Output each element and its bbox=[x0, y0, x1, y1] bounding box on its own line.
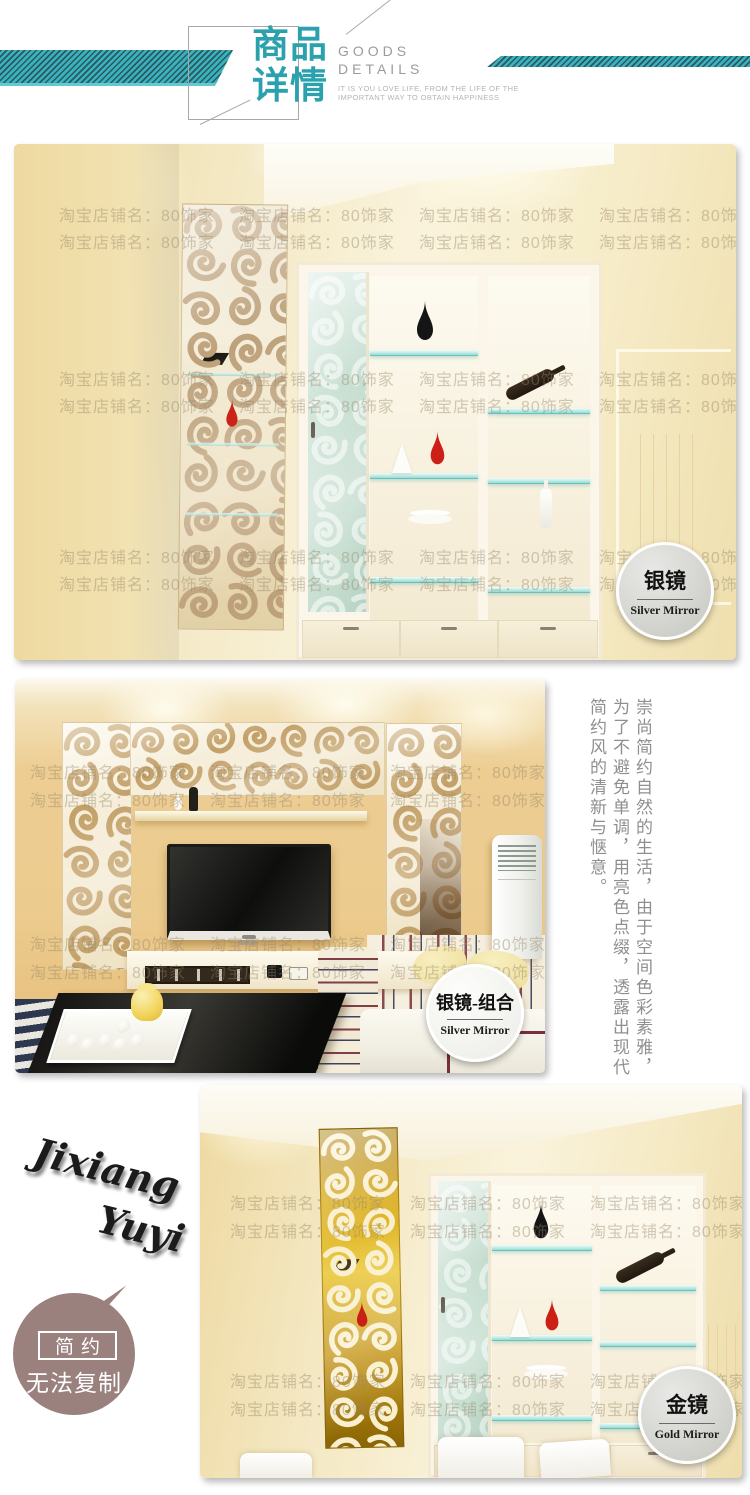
red-teardrop-vase bbox=[429, 426, 446, 472]
black-teardrop-vase bbox=[532, 1199, 550, 1245]
white-cone-vase bbox=[392, 443, 412, 473]
glass-shelf bbox=[600, 1341, 696, 1347]
wall-outlet bbox=[289, 967, 308, 980]
white-chair bbox=[539, 1439, 611, 1478]
product-photo-gold-mirror: 淘宝店铺名：80饰家淘宝店铺名：80饰家淘宝店铺名：80饰家淘宝店铺名：80饰家… bbox=[200, 1085, 742, 1478]
white-vase bbox=[540, 488, 552, 528]
white-mini-vase bbox=[173, 789, 183, 813]
wall-shelf bbox=[135, 811, 367, 821]
glass-shelf bbox=[488, 478, 590, 484]
white-cone-vase bbox=[510, 1307, 530, 1337]
silver-swirl-mirror-panel bbox=[178, 203, 288, 630]
tv-screen bbox=[167, 844, 331, 940]
white-chair bbox=[240, 1453, 312, 1478]
white-dishes bbox=[408, 514, 452, 524]
room-left-wall bbox=[14, 144, 179, 660]
badge-divider bbox=[659, 1423, 715, 1424]
glass-shelf bbox=[370, 473, 478, 479]
badge-title: 银镜 bbox=[644, 565, 686, 595]
tagline-line2: IMPORTANT WAY TO OBTAIN HAPPINESS bbox=[338, 93, 528, 102]
room-ceiling bbox=[200, 1085, 742, 1171]
badge-subtitle: Silver Mirror bbox=[440, 1023, 509, 1038]
swirl-pattern bbox=[320, 1128, 404, 1448]
yellow-jar bbox=[131, 987, 163, 1021]
badge-divider bbox=[447, 1019, 503, 1020]
glass-shelf bbox=[492, 1335, 592, 1341]
badge-title: 银镜-组合 bbox=[436, 989, 514, 1015]
badge-subtitle: Gold Mirror bbox=[655, 1427, 720, 1442]
decor-line-top bbox=[346, 0, 392, 35]
cabinet-drawer bbox=[400, 620, 498, 658]
glass-shelf bbox=[488, 587, 590, 593]
air-conditioner bbox=[492, 835, 542, 959]
cabinet-bay-right bbox=[488, 276, 590, 622]
door-handle bbox=[441, 1297, 445, 1313]
stamp-caption: 无法复制 bbox=[13, 1364, 135, 1398]
dark-mini-vase bbox=[189, 787, 198, 811]
swirl-panel-right-column bbox=[386, 723, 462, 937]
subtitle-line1: GOODS bbox=[338, 42, 458, 60]
door-swirl-pattern bbox=[308, 272, 366, 612]
red-teardrop-vase bbox=[544, 1295, 560, 1337]
minimalism-stamp: 简约 无法复制 bbox=[13, 1293, 135, 1415]
badge-subtitle: Silver Mirror bbox=[630, 603, 699, 618]
page-title: 商品 详情 bbox=[252, 24, 342, 106]
glass-shelf bbox=[370, 577, 478, 583]
product-photo-silver-mirror: 淘宝店铺名：80饰家淘宝店铺名：80饰家淘宝店铺名：80饰家淘宝店铺名：80饰家… bbox=[14, 144, 736, 660]
page-subtitle: GOODS DETAILS bbox=[338, 42, 458, 78]
stamp-box-label: 简约 bbox=[38, 1331, 117, 1360]
swirl-panel-top-band bbox=[130, 722, 385, 796]
reflected-dark-object bbox=[200, 353, 229, 365]
white-dishes bbox=[524, 1369, 568, 1379]
serving-tray bbox=[46, 1009, 192, 1063]
console-books-niche bbox=[145, 966, 250, 984]
goods-details-header: 商品 详情 GOODS DETAILS IT IS YOU LOVE LIFE,… bbox=[0, 0, 750, 135]
mirror-reflection-shelf-line bbox=[186, 513, 278, 517]
swirl-pattern bbox=[131, 723, 384, 795]
frosted-glass-door bbox=[438, 1181, 491, 1443]
silver-mirror-badge: 银镜 Silver Mirror bbox=[616, 542, 714, 640]
vertical-marketing-copy: 崇尚简约自然的生活，由于空间色彩素雅，为了不避免单调，用亮色点缀，透露出现代简约… bbox=[585, 698, 654, 1084]
page-tagline: IT IS YOU LOVE LIFE, FROM THE LIFE OF TH… bbox=[338, 84, 528, 102]
glass-shelf bbox=[370, 350, 478, 356]
tv-logo bbox=[242, 935, 256, 939]
display-cabinet bbox=[296, 262, 602, 660]
reflected-dark-object bbox=[333, 1259, 359, 1271]
swirl-pattern bbox=[387, 724, 461, 936]
tagline-line1: IT IS YOU LOVE LIFE, FROM THE LIFE OF TH… bbox=[338, 84, 528, 93]
wall-speaker bbox=[267, 965, 282, 978]
badge-divider bbox=[637, 599, 693, 600]
door-swirl-pattern bbox=[438, 1181, 488, 1443]
cabinet-drawer bbox=[498, 620, 598, 658]
white-chair bbox=[438, 1437, 524, 1478]
cabinet-drawer bbox=[302, 620, 400, 658]
product-photo-silver-mirror-combo: 淘宝店铺名：80饰家淘宝店铺名：80饰家淘宝店铺名：80饰家淘宝店铺名：80饰家… bbox=[15, 679, 545, 1073]
door-handle bbox=[311, 422, 315, 438]
subtitle-line2: DETAILS bbox=[338, 60, 458, 78]
room-ceiling bbox=[264, 144, 614, 244]
black-teardrop-vase bbox=[415, 296, 435, 348]
gold-swirl-mirror-panel bbox=[319, 1127, 405, 1449]
glass-shelf bbox=[488, 408, 590, 414]
silver-mirror-combo-badge: 银镜-组合 Silver Mirror bbox=[426, 964, 524, 1062]
swirl-pattern bbox=[63, 723, 131, 969]
glass-shelf bbox=[600, 1285, 696, 1291]
swirl-panel-left-column bbox=[62, 722, 132, 970]
badge-title: 金镜 bbox=[666, 1389, 708, 1419]
header-ribbon-right bbox=[487, 56, 750, 67]
glass-shelf bbox=[492, 1415, 592, 1421]
frosted-glass-door bbox=[308, 272, 369, 612]
mirror-reflection-shelf-line bbox=[187, 373, 279, 377]
panel-dark-reflection bbox=[420, 819, 461, 936]
gold-mirror-badge: 金镜 Gold Mirror bbox=[638, 1366, 736, 1464]
reflected-red-vase bbox=[225, 397, 239, 431]
mirror-reflection-shelf-line bbox=[187, 443, 279, 447]
brand-script-text: Jixiang Yuyi bbox=[16, 1127, 205, 1265]
ac-vents bbox=[498, 845, 536, 871]
reflected-red-vase bbox=[355, 1299, 369, 1331]
glass-shelf bbox=[492, 1245, 592, 1251]
ac-seam bbox=[498, 879, 536, 880]
